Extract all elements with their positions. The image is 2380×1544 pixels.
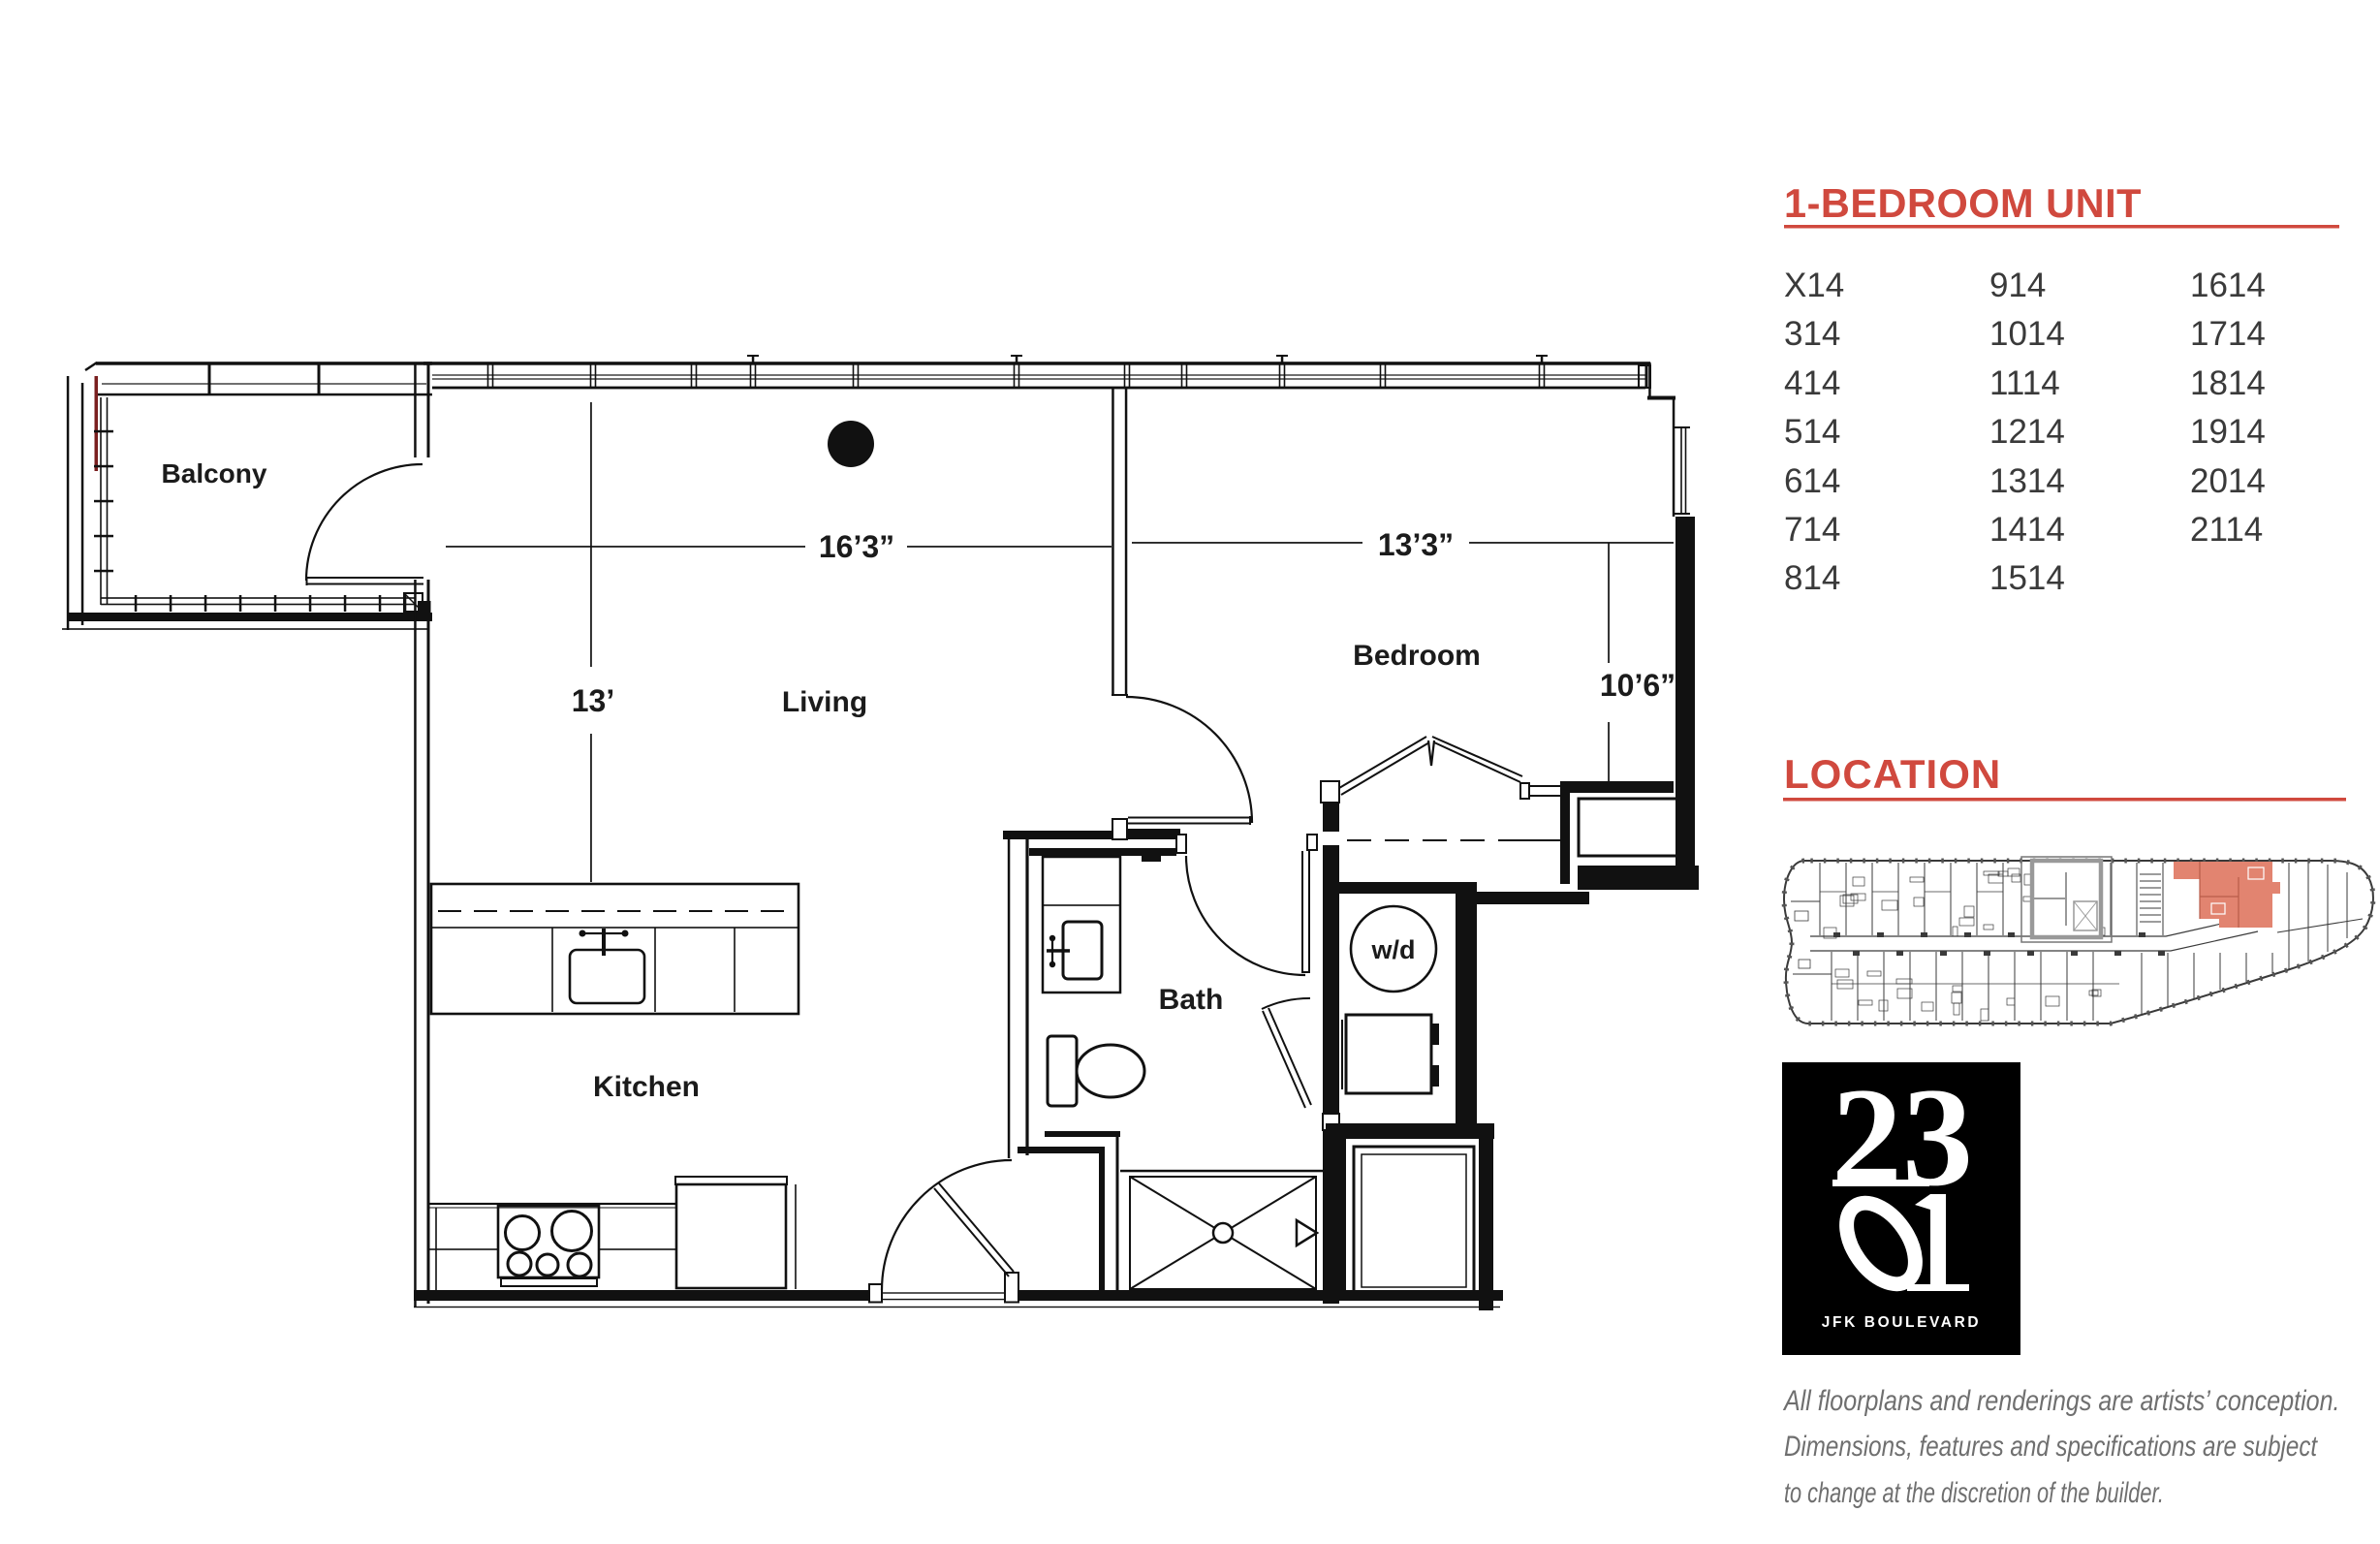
svg-text:Balcony: Balcony <box>162 458 267 488</box>
svg-text:Dimensions, features and speci: Dimensions, features and specifications … <box>1784 1429 2318 1462</box>
svg-text:1114: 1114 <box>1989 364 2060 402</box>
svg-text:to change at the discretion of: to change at the discretion of the build… <box>1784 1476 2164 1509</box>
svg-text:1514: 1514 <box>1989 559 2065 597</box>
svg-text:1414: 1414 <box>1989 511 2065 549</box>
svg-text:914: 914 <box>1989 267 2046 304</box>
svg-text:1014: 1014 <box>1989 315 2065 353</box>
svg-text:1914: 1914 <box>2190 413 2266 451</box>
svg-text:414: 414 <box>1784 364 1840 402</box>
svg-text:X14: X14 <box>1784 267 1844 304</box>
svg-text:16’3”: 16’3” <box>819 529 894 564</box>
svg-text:2114: 2114 <box>2190 511 2263 549</box>
svg-text:2014: 2014 <box>2190 462 2266 500</box>
svg-text:JFK BOULEVARD: JFK BOULEVARD <box>1822 1314 1981 1331</box>
svg-text:Bath: Bath <box>1159 984 1224 1016</box>
svg-text:514: 514 <box>1784 413 1840 451</box>
svg-text:Living: Living <box>782 686 867 718</box>
svg-text:Bedroom: Bedroom <box>1353 640 1481 672</box>
svg-text:LOCATION: LOCATION <box>1784 751 2001 797</box>
svg-text:10’6”: 10’6” <box>1600 668 1675 703</box>
svg-text:1714: 1714 <box>2190 315 2266 353</box>
svg-text:Kitchen: Kitchen <box>593 1071 700 1103</box>
svg-text:1814: 1814 <box>2190 364 2266 402</box>
svg-text:614: 614 <box>1784 462 1840 500</box>
svg-text:23: 23 <box>1832 1058 1973 1215</box>
svg-text:1214: 1214 <box>1989 413 2065 451</box>
svg-text:1614: 1614 <box>2190 267 2266 304</box>
svg-text:13’: 13’ <box>572 683 614 718</box>
svg-text:814: 814 <box>1784 559 1840 597</box>
svg-text:314: 314 <box>1784 315 1840 353</box>
svg-text:714: 714 <box>1784 511 1840 549</box>
svg-text:All floorplans and renderings: All floorplans and renderings are artist… <box>1782 1384 2339 1417</box>
svg-text:w/d: w/d <box>1371 935 1416 964</box>
svg-text:1314: 1314 <box>1989 462 2065 500</box>
svg-text:1-BEDROOM UNIT: 1-BEDROOM UNIT <box>1784 180 2142 226</box>
svg-text:13’3”: 13’3” <box>1378 527 1454 562</box>
